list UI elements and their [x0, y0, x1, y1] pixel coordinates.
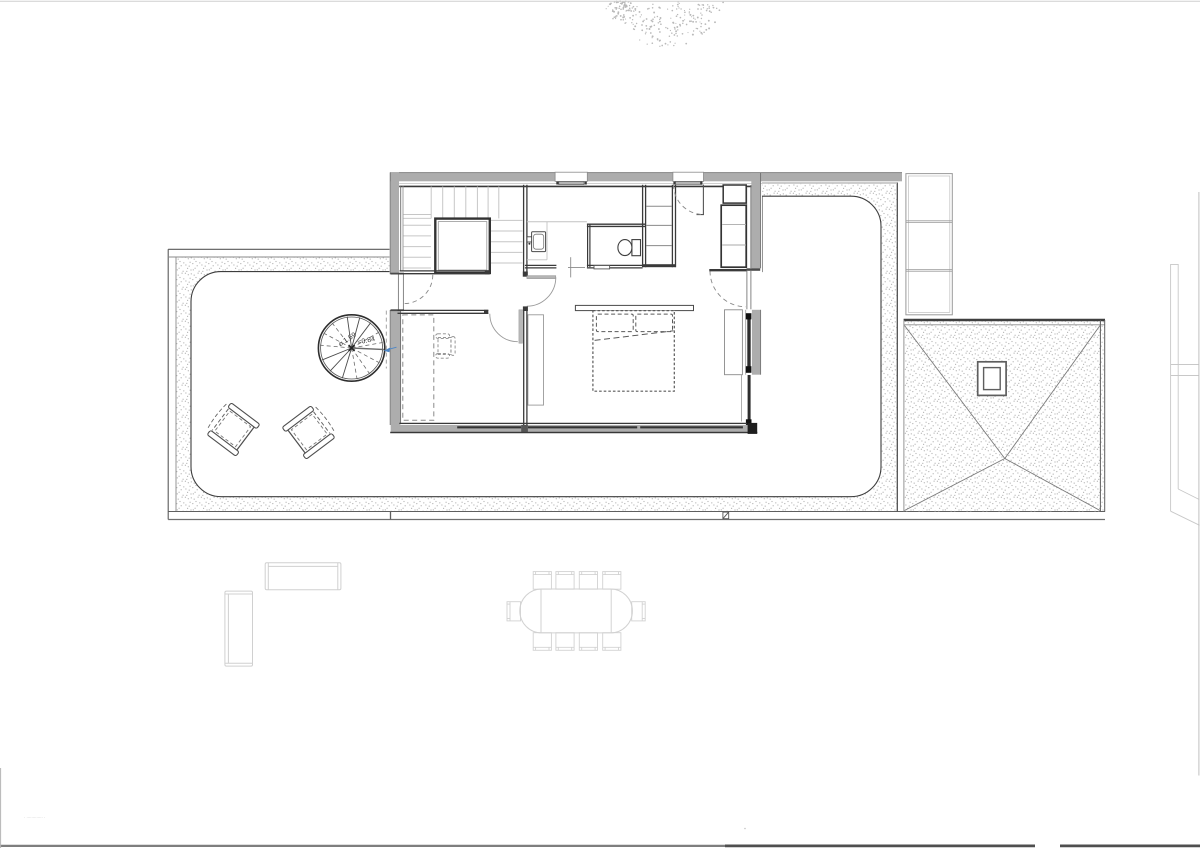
- svg-text:. ............. .: . ............. .: [24, 814, 45, 819]
